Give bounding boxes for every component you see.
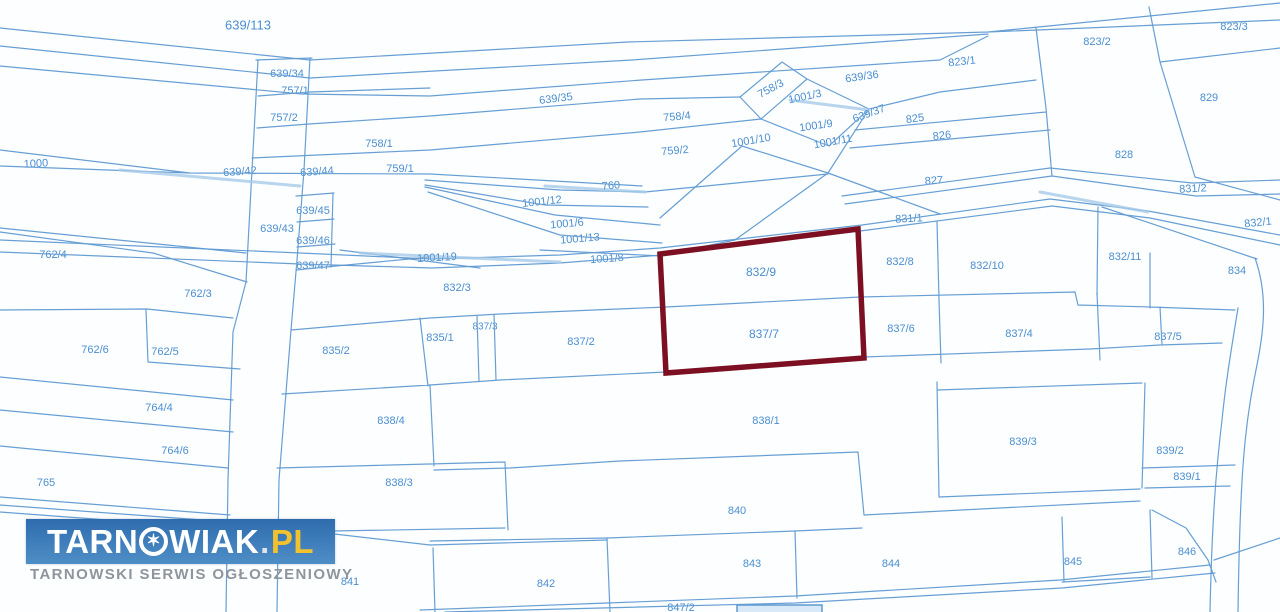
parcel-label-762/4: 762/4 xyxy=(39,249,67,261)
site-logo-brand: TARN ✶ WIAK . PL xyxy=(47,525,314,558)
parcel-label-832/1: 832/1 xyxy=(1244,216,1273,231)
parcel-label-839/3: 839/3 xyxy=(1009,436,1037,448)
parcel-label-639/44: 639/44 xyxy=(300,165,334,179)
parcel-label-838/1: 838/1 xyxy=(752,415,780,427)
parcel-label-639/43: 639/43 xyxy=(260,223,294,235)
parcel-label-835/1: 835/1 xyxy=(426,332,454,344)
parcel-label-829: 829 xyxy=(1200,92,1218,104)
parcel-label-831/2: 831/2 xyxy=(1179,182,1207,195)
parcel-label-1000: 1000 xyxy=(23,157,48,170)
parcel-label-839/1: 839/1 xyxy=(1173,471,1201,483)
parcel-label-845: 845 xyxy=(1064,556,1082,568)
parcel-label-823/3: 823/3 xyxy=(1220,21,1248,33)
parcel-label-846: 846 xyxy=(1178,546,1196,558)
logo-tld: PL xyxy=(271,525,314,558)
parcel-label-839/2: 839/2 xyxy=(1156,445,1184,457)
parcel-label-837/7: 837/7 xyxy=(749,327,779,341)
parcel-label-843: 843 xyxy=(743,558,761,570)
parcel-label-835/2: 835/2 xyxy=(322,345,350,357)
parcel-label-759/1: 759/1 xyxy=(386,163,414,175)
parcel-label-823/2: 823/2 xyxy=(1083,36,1111,48)
parcel-label-842: 842 xyxy=(537,578,555,590)
parcel-label-1001/19: 1001/19 xyxy=(417,251,457,265)
parcel-label-844: 844 xyxy=(882,558,900,570)
parcel-label-639/113: 639/113 xyxy=(225,18,271,33)
parcel-label-837/4: 837/4 xyxy=(1005,328,1033,340)
parcel-label-639/47: 639/47 xyxy=(296,260,330,272)
parcel-label-757/2: 757/2 xyxy=(270,112,298,124)
parcel-label-834: 834 xyxy=(1228,265,1246,277)
parcel-label-639/42: 639/42 xyxy=(223,165,257,179)
parcel-label-1001/3: 1001/3 xyxy=(787,88,822,107)
parcel-label-832/10: 832/10 xyxy=(970,260,1004,272)
parcel-label-639/45: 639/45 xyxy=(296,205,330,217)
parcel-label-764/6: 764/6 xyxy=(161,445,189,457)
site-logo: TARN ✶ WIAK . PL xyxy=(26,519,335,564)
parcel-label-827: 827 xyxy=(924,174,943,187)
star-icon: ✶ xyxy=(146,532,161,549)
parcel-label-758/4: 758/4 xyxy=(663,110,691,124)
parcel-label-762/6: 762/6 xyxy=(81,344,109,356)
parcel-label-1001/9: 1001/9 xyxy=(799,118,834,135)
parcel-label-639/36: 639/36 xyxy=(845,69,880,86)
parcel-label-832/3: 832/3 xyxy=(443,282,471,294)
parcel-label-837/5: 837/5 xyxy=(1154,331,1182,343)
parcel-label-639/34: 639/34 xyxy=(270,68,304,80)
logo-star-circle: ✶ xyxy=(139,527,168,556)
parcel-label-1001/13: 1001/13 xyxy=(560,231,601,246)
parcel-label-847/2: 847/2 xyxy=(667,602,695,612)
parcel-label-832/9: 832/9 xyxy=(746,265,776,279)
parcel-label-757/1: 757/1 xyxy=(281,85,309,97)
parcel-label-762/3: 762/3 xyxy=(184,288,212,300)
parcel-label-760: 760 xyxy=(601,179,620,193)
parcel-label-837/3: 837/3 xyxy=(472,322,497,333)
parcel-label-1001/12: 1001/12 xyxy=(522,194,563,210)
parcel-label-838/4: 838/4 xyxy=(377,415,405,427)
parcel-label-837/6: 837/6 xyxy=(887,323,915,335)
parcel-label-765: 765 xyxy=(37,477,55,489)
parcel-label-639/46: 639/46 xyxy=(296,235,330,247)
parcel-label-838/3: 838/3 xyxy=(385,477,413,489)
parcel-label-828: 828 xyxy=(1115,149,1133,161)
parcel-label-1001/10: 1001/10 xyxy=(730,132,771,151)
parcel-label-823/1: 823/1 xyxy=(948,55,977,70)
parcel-label-639/37: 639/37 xyxy=(851,103,887,126)
parcel-label-639/35: 639/35 xyxy=(539,91,574,107)
parcel-label-1001/6: 1001/6 xyxy=(550,217,585,232)
parcel-label-832/11: 832/11 xyxy=(1109,251,1142,263)
logo-text-prefix: TARN xyxy=(47,525,138,558)
parcel-label-758/1: 758/1 xyxy=(365,138,393,150)
parcel-label-831/1: 831/1 xyxy=(895,212,923,225)
parcel-label-840: 840 xyxy=(728,505,746,517)
parcel-label-826: 826 xyxy=(932,129,952,143)
site-tagline: TARNOWSKI SERWIS OGŁOSZENIOWY xyxy=(30,566,340,583)
parcel-label-764/4: 764/4 xyxy=(145,402,173,414)
parcel-label-825: 825 xyxy=(905,112,925,126)
parcel-label-759/2: 759/2 xyxy=(661,144,689,158)
logo-dot: . xyxy=(260,525,270,558)
parcel-label-832/8: 832/8 xyxy=(886,256,914,268)
parcel-label-758/3: 758/3 xyxy=(756,77,786,101)
parcel-label-1001/8: 1001/8 xyxy=(590,252,624,266)
cadastral-map: 639/113639/34757/1757/2758/1759/11000639… xyxy=(0,0,1280,612)
parcel-label-762/5: 762/5 xyxy=(151,346,179,358)
logo-text-suffix: WIAK xyxy=(169,525,259,558)
parcel-label-837/2: 837/2 xyxy=(567,336,595,348)
parcel-label-1001/11: 1001/11 xyxy=(813,133,853,152)
